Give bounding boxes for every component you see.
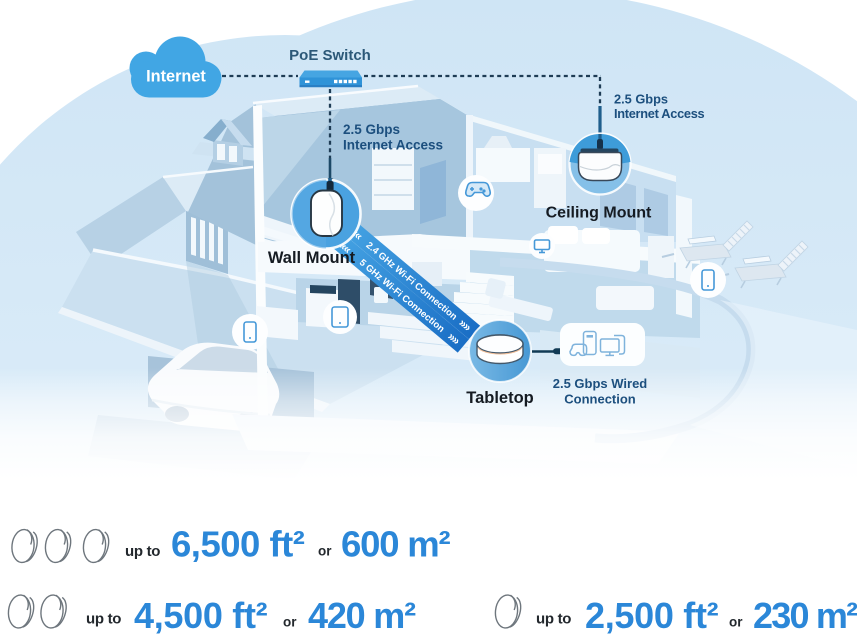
- svg-text:PoE Switch: PoE Switch: [289, 47, 371, 64]
- svg-text:or: or: [729, 615, 743, 630]
- svg-text:600 m²: 600 m²: [341, 524, 450, 565]
- svg-text:Tabletop: Tabletop: [466, 389, 534, 407]
- svg-text:2,500 ft²: 2,500 ft²: [585, 595, 719, 636]
- svg-text:2.5 Gbps: 2.5 Gbps: [614, 92, 668, 107]
- svg-text:Internet Access: Internet Access: [343, 138, 443, 153]
- svg-text:Connection: Connection: [564, 392, 636, 407]
- svg-text:2.5 Gbps Wired: 2.5 Gbps Wired: [553, 376, 648, 391]
- svg-text:230 m²: 230 m²: [753, 595, 857, 636]
- svg-text:up to: up to: [125, 543, 160, 560]
- svg-text:Internet Access: Internet Access: [614, 106, 705, 121]
- svg-text:or: or: [283, 615, 297, 630]
- svg-text:Ceiling Mount: Ceiling Mount: [546, 205, 652, 222]
- svg-text:4,500 ft²: 4,500 ft²: [134, 595, 268, 636]
- svg-text:420 m²: 420 m²: [308, 595, 416, 636]
- svg-text:2.5 Gbps: 2.5 Gbps: [343, 122, 400, 137]
- svg-text:up to: up to: [536, 611, 571, 628]
- svg-text:Wall Mount: Wall Mount: [268, 249, 356, 267]
- svg-text:up to: up to: [86, 611, 121, 628]
- svg-text:Internet: Internet: [146, 68, 206, 86]
- svg-text:6,500 ft²: 6,500 ft²: [171, 524, 305, 565]
- svg-text:or: or: [318, 544, 332, 559]
